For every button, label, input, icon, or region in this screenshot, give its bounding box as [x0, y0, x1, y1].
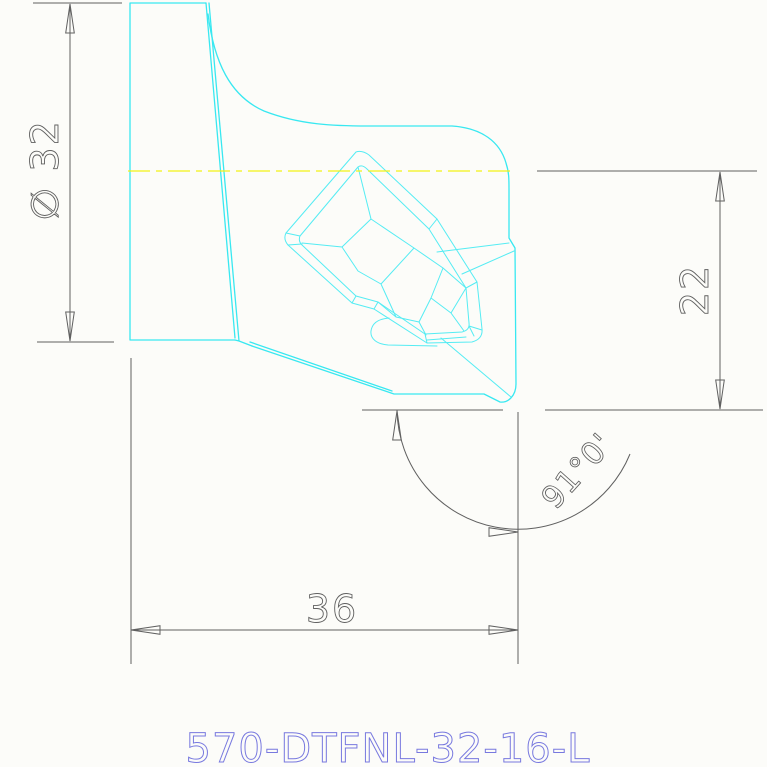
dim-diameter-text: ∅ 32: [23, 119, 67, 221]
dim-diameter: ∅ 32: [23, 3, 122, 342]
dim-height: 22: [537, 171, 763, 410]
pocket-edges: [437, 243, 514, 397]
dim-height-text: 22: [673, 264, 717, 316]
insert-facet-mesh: [286, 167, 482, 343]
dim-angle-text: 91°0': [535, 426, 621, 516]
dim-height-extension-lines: [537, 171, 763, 410]
shank-taper-edges: [206, 3, 252, 346]
insert-inner-contour: [299, 166, 469, 334]
insert-wireframe: [285, 151, 482, 343]
head-lower-edge: [250, 342, 392, 391]
dim-length-text: 36: [306, 587, 358, 631]
dim-angle: 91°0': [362, 410, 630, 536]
drawing-title: 570-DTFNL-32-16-L: [186, 726, 591, 767]
cad-drawing-viewport: ∅ 32 22 36 91°0' 570-DTFNL-32-16-L: [0, 0, 767, 767]
dim-length: 36: [131, 358, 518, 664]
